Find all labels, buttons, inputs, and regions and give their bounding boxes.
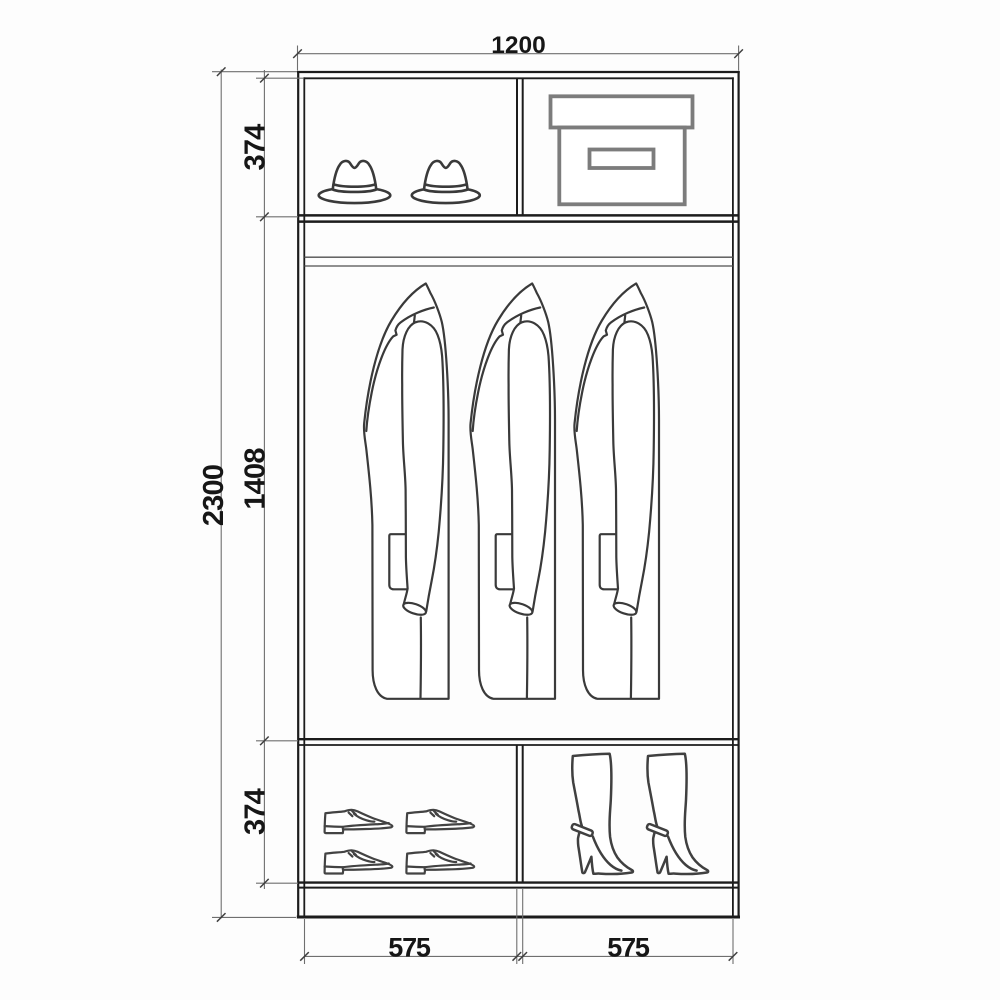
svg-text:2300: 2300 <box>198 465 230 526</box>
svg-text:1200: 1200 <box>491 32 546 59</box>
svg-text:575: 575 <box>607 933 650 963</box>
svg-text:374: 374 <box>239 788 271 835</box>
svg-text:575: 575 <box>388 933 431 963</box>
svg-text:1408: 1408 <box>239 448 271 510</box>
svg-text:374: 374 <box>239 124 271 171</box>
